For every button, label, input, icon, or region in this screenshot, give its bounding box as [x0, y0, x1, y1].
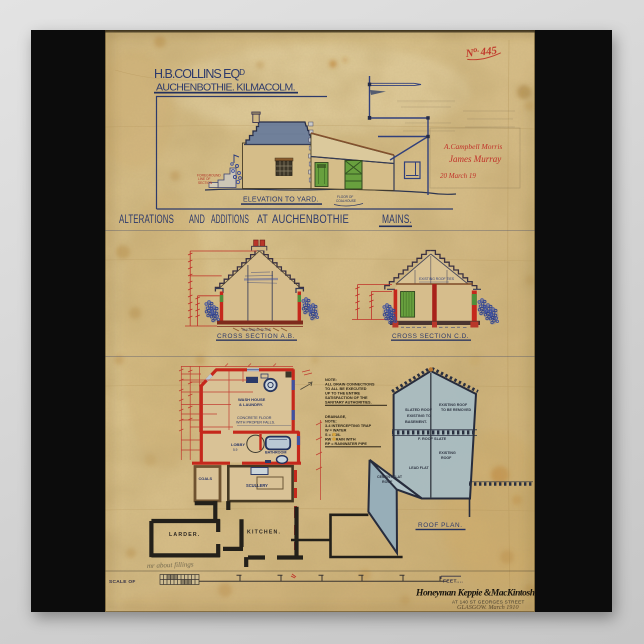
svg-text:SCULLERY: SCULLERY: [246, 483, 268, 488]
svg-text:20 March 19: 20 March 19: [440, 172, 476, 180]
svg-text:RW = RAIN WITH: RW = RAIN WITH: [325, 438, 356, 442]
svg-text:COALS: COALS: [199, 476, 213, 481]
svg-text:ROOF PLAN.: ROOF PLAN.: [418, 522, 463, 529]
svg-text:UP TO THE ENTIRE: UP TO THE ENTIRE: [325, 392, 361, 396]
svg-text:KITCHEN.: KITCHEN.: [247, 530, 281, 536]
svg-text:DRAINAGE,: DRAINAGE,: [325, 415, 346, 419]
svg-text:EXISTING TO: EXISTING TO: [407, 414, 431, 418]
svg-text:3-4 INTERCEPTING TRAP: 3-4 INTERCEPTING TRAP: [325, 424, 372, 428]
svg-text:BATHROOM: BATHROOM: [265, 451, 286, 455]
svg-text:CROSS SECTION A.B.: CROSS SECTION A.B.: [217, 333, 295, 340]
svg-text:& LAUNDRY.: & LAUNDRY.: [239, 402, 263, 407]
svg-text:LARDER.: LARDER.: [169, 532, 200, 538]
svg-text:COALHOUSE: COALHOUSE: [336, 199, 356, 203]
svg-text:EXISTING: EXISTING: [439, 451, 456, 455]
svg-text:FEET....: FEET....: [443, 579, 463, 585]
svg-text:ROOF: ROOF: [382, 480, 393, 484]
svg-text:TO ALL BE EXECUTED: TO ALL BE EXECUTED: [325, 387, 367, 391]
svg-text:SECTION: SECTION: [198, 181, 213, 185]
svg-text:5.9: 5.9: [233, 448, 238, 452]
svg-text:ROOF: ROOF: [441, 456, 452, 460]
svg-text:ELEVATION TO YARD.: ELEVATION TO YARD.: [243, 197, 319, 204]
svg-text:BASEMENT.: BASEMENT.: [405, 420, 427, 424]
svg-text:NOTE:: NOTE:: [325, 420, 337, 424]
svg-text:GLASGOW. March 1910: GLASGOW. March 1910: [457, 604, 519, 611]
svg-text:EXISTING ROOF: EXISTING ROOF: [439, 403, 468, 407]
svg-text:Honeyman Keppie &MacKintosh: Honeyman Keppie &MacKintosh: [415, 589, 535, 599]
svg-text:AUCHENBOTHIE. KILMACOLM.: AUCHENBOTHIE. KILMACOLM.: [156, 82, 296, 94]
svg-text:H.B.COLLINS EQD: H.B.COLLINS EQD: [154, 67, 246, 81]
svg-text:CONCRETE FLOOR: CONCRETE FLOOR: [237, 416, 272, 420]
svg-text:mr about fillings: mr about fillings: [147, 560, 194, 570]
svg-text:W = WATER: W = WATER: [325, 429, 347, 433]
svg-text:SCALE OF: SCALE OF: [109, 579, 136, 585]
svg-text:A.Campbell Morris: A.Campbell Morris: [443, 142, 502, 151]
svg-text:LOBBY: LOBBY: [231, 442, 245, 447]
svg-text:TO BE REMOVED: TO BE REMOVED: [441, 408, 471, 412]
svg-text:EXISTING ROOF TIES: EXISTING ROOF TIES: [419, 277, 455, 281]
svg-text:CEMENT FLAT: CEMENT FLAT: [377, 475, 403, 479]
svg-text:SHOWING ROOF: SHOWING ROOF: [242, 328, 272, 332]
svg-text:WITH PROPER FALLS.: WITH PROPER FALLS.: [236, 421, 275, 425]
svg-text:LEAD FLAT: LEAD FLAT: [409, 466, 429, 470]
svg-text:SLATED ROOF: SLATED ROOF: [405, 408, 433, 412]
svg-text:James Murray: James Murray: [449, 154, 501, 164]
svg-text:RP = RAINWATER PIPE: RP = RAINWATER PIPE: [325, 442, 367, 446]
svg-text:ALL DRAIN CONNECTIONS: ALL DRAIN CONNECTIONS: [325, 383, 375, 387]
svg-text:F. ROOF SLATE: F. ROOF SLATE: [418, 437, 447, 441]
svg-text:CROSS SECTION C.D.: CROSS SECTION C.D.: [392, 333, 469, 340]
svg-text:NOTE:: NOTE:: [325, 378, 337, 382]
svg-text:SANITARY AUTHORITIES.: SANITARY AUTHORITIES.: [325, 401, 372, 405]
svg-text:SATISFACTION OF THE: SATISFACTION OF THE: [325, 396, 368, 400]
